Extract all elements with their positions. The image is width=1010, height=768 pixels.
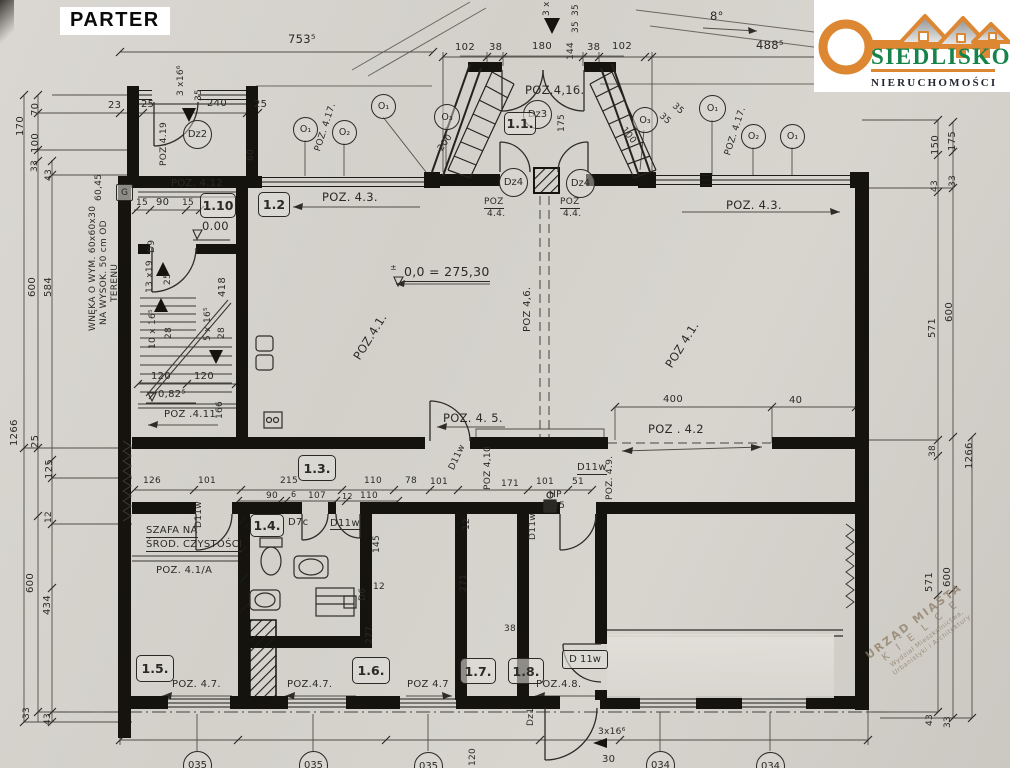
riser-label: ∅25 <box>545 502 565 511</box>
photo-shadow-corner <box>0 0 14 46</box>
dim-label: 60,45 <box>95 174 104 201</box>
dim-label: 12 <box>463 518 472 530</box>
room-1-6: 1.6. <box>352 657 390 684</box>
logo-underline <box>871 69 995 72</box>
door-tag-dz4: Dz4 <box>566 169 595 198</box>
dim-label: 38 <box>504 625 516 634</box>
dim-label: 43 <box>931 180 940 192</box>
dim-label: 120 <box>194 372 214 382</box>
stair-count-label: 3x16⁶ <box>598 728 626 737</box>
dim-label: 100 <box>31 133 41 153</box>
stair-count-label: 10 x 16⁵ <box>149 309 158 349</box>
note-label: TERENU <box>111 264 120 302</box>
dim-label: 35 <box>572 21 581 33</box>
dim-label: 120 <box>151 372 171 382</box>
dim-label: 584 <box>44 277 54 297</box>
poz-label: POZ. 4.7. <box>172 680 221 690</box>
dim-label: 753⁵ <box>288 34 316 46</box>
door-tag: D9 <box>148 240 157 253</box>
stair-count-label: 13 x19 <box>146 260 155 293</box>
dim-label: 102 <box>455 43 475 53</box>
window-axis-o2: O₂ <box>332 120 357 145</box>
logo-brand: SIEDLISKO <box>871 44 1010 69</box>
floorplan-page: PARTER SIEDLISKO NIERUCHOMOŚCI 753⁵ 488⁵… <box>0 0 1010 768</box>
dim-label: 102 <box>612 42 632 52</box>
dim-label: 33 <box>23 707 32 719</box>
dim-label: 12 <box>45 511 54 523</box>
dim-label: 33 <box>31 160 40 172</box>
dim-label: 60 <box>247 149 256 161</box>
dim-label: 101 <box>430 478 448 487</box>
dim-label: 35 <box>195 89 204 101</box>
dim-label: 6 <box>291 491 296 499</box>
gas-box: G <box>116 184 133 201</box>
window-axis-o1: O₁ <box>293 117 318 142</box>
dim-label: 277 <box>366 626 375 644</box>
erased-area <box>607 634 834 698</box>
datum-level: 0,0 = 275,30 <box>404 266 490 282</box>
window-axis-o1: O₁ <box>699 95 726 122</box>
stair-count-label: 3 x16⁶ <box>177 65 186 96</box>
room-1-2: 1.2 <box>258 192 290 217</box>
dim-label: 170 <box>16 116 26 136</box>
houses-icon <box>899 16 1009 46</box>
note-label: ŚROD. CZYSTOŚCI <box>146 540 242 552</box>
dim-label: 101 <box>198 477 216 486</box>
poz-label: POZ.4,16. <box>525 85 584 97</box>
room-1-4: 1.4. <box>250 514 284 537</box>
dim-label: 78 <box>405 477 417 486</box>
door-tag-dz2: Dz2 <box>183 120 212 149</box>
dim-label: 418 <box>218 277 228 297</box>
dim-label: 90 <box>156 198 169 208</box>
dim-label: 1266 <box>10 419 20 446</box>
room-1-1: 1.1. <box>504 112 536 135</box>
dim-label: 110 <box>364 477 382 486</box>
dim-label: 33 <box>949 175 958 187</box>
poz-label: POZ . 4.2 <box>648 424 704 436</box>
dim-label: 38 <box>587 43 600 53</box>
dim-label: 150 <box>931 135 941 155</box>
note-label: SZAFA NA <box>146 526 198 538</box>
note-label: NA WYSOK. 50 cm OD <box>100 220 109 325</box>
dim-label: 90 <box>266 492 278 501</box>
poz-label: POZ. 4.3. <box>322 192 378 204</box>
dim-label: 40 <box>789 396 802 406</box>
poz-upper: POZ <box>560 197 580 209</box>
agency-logo: SIEDLISKO NIERUCHOMOŚCI <box>814 0 1010 92</box>
dim-label: 110 <box>360 492 378 501</box>
dim-label: 600 <box>945 302 955 322</box>
dim-label: 215 <box>280 477 298 486</box>
dim-label: 145 <box>373 535 382 553</box>
door-tag: D11w <box>577 463 607 475</box>
poz-upper: POZ <box>484 197 504 209</box>
dim-label: 43 <box>44 713 53 725</box>
dim-label: 25 <box>141 100 154 110</box>
poz-label: POZ .4.11 <box>164 410 216 420</box>
door-tag: D11w <box>330 519 360 530</box>
dim-label: 240 <box>207 99 227 109</box>
level-plusminus: ± <box>390 264 397 272</box>
room-1-7: 1.7. <box>460 658 496 684</box>
dim-label: 15 <box>136 199 148 208</box>
window-axis-o3: O₃ <box>632 107 658 133</box>
dim-label: 38 <box>929 445 938 457</box>
stair-count-label: 30 <box>602 755 615 765</box>
door-tag: D7c <box>288 518 308 528</box>
dim-label: 12 <box>342 493 353 501</box>
poz-label: 4.4. <box>563 210 581 219</box>
poz-label: POZ <box>484 198 504 207</box>
level-marks <box>146 230 403 403</box>
dim-label: 488⁵ <box>756 40 784 52</box>
dim-label: 175 <box>948 131 958 151</box>
dim-label: 35 <box>572 4 581 16</box>
dim-label: 600 <box>26 573 36 593</box>
door-tag: D11w <box>529 513 538 540</box>
window-axis-o2: O₂ <box>741 124 766 149</box>
dim-label: 271 <box>460 574 469 592</box>
dim-label: 175 <box>558 114 567 132</box>
dim-label: 180 <box>532 42 552 52</box>
door-tag: D11w <box>195 501 204 528</box>
dim-label: 571 <box>928 318 938 338</box>
dim-label: 25 <box>31 435 41 448</box>
dim-label: 12 <box>373 583 385 592</box>
dim-label: 126 <box>143 477 161 486</box>
door-tag: D6 <box>359 588 368 601</box>
dim-label: 107 <box>308 492 326 501</box>
poz-label: POZ. 4.12 <box>171 179 223 189</box>
window-axis-o1: O₁ <box>371 94 396 119</box>
poz-label: POZ 4,6. <box>523 287 533 332</box>
poz-label: POZ.4.19 <box>160 122 169 166</box>
plan-title: PARTER <box>60 7 170 35</box>
logo-subtitle: NIERUCHOMOŚCI <box>871 77 997 89</box>
room-1-10: 1.10 <box>200 193 236 218</box>
poz-label: 4.4. <box>487 210 505 219</box>
window-axis-o3: O₃ <box>434 104 460 130</box>
window-axis-o1: O₁ <box>780 124 805 149</box>
level-label: 0,82⁵ <box>158 390 186 400</box>
dim-label: 28 <box>165 327 174 339</box>
poz-label: POZ.4.7. <box>287 680 332 690</box>
level-label: 0.00 <box>202 221 229 233</box>
note-label: WNĘKA O WYM. 60x60x30 <box>89 206 98 331</box>
dim-label: 171 <box>501 480 519 489</box>
dim-label: 600 <box>28 277 38 297</box>
poz-label: POZ <box>560 198 580 207</box>
dim-label: 70 <box>31 103 41 116</box>
riser-label: HP <box>549 491 562 500</box>
poz-label: POZ 4,10 <box>484 446 493 490</box>
dim-label: 120 <box>469 748 478 766</box>
dim-label: 25 <box>164 273 173 285</box>
dim-label: 15 <box>182 199 194 208</box>
dim-label: 28 <box>218 327 227 339</box>
stair-count-label: 5 x 16⁵ <box>204 307 213 341</box>
agency-logo-graphic: SIEDLISKO NIERUCHOMOŚCI <box>814 0 1010 92</box>
dim-label: 1266 <box>965 442 975 469</box>
dim-label: 144 <box>567 42 576 60</box>
dim-label: 25 <box>254 100 267 110</box>
room-1-5: 1.5. <box>136 655 174 682</box>
dim-label: 51 <box>572 478 584 487</box>
poz-label: POZ. 4.1/A <box>156 566 212 576</box>
dim-label: 434 <box>43 595 53 615</box>
poz-label: POZ. 4.3. <box>726 200 782 212</box>
door-tag: Dz1 <box>527 708 536 726</box>
poz-label: POZ. 4. 5. <box>443 413 503 425</box>
room-1-3: 1.3. <box>298 455 336 481</box>
hatched-masonry <box>239 168 559 698</box>
dim-label: 125 <box>45 459 55 479</box>
dim-label: 400 <box>663 395 683 405</box>
dim-label: 166 <box>216 401 225 419</box>
dim-label: 38 <box>489 43 502 53</box>
roof-slope-label: 8° <box>710 11 724 23</box>
dim-label: 23 <box>108 101 121 111</box>
dim-label: 43 <box>926 714 935 726</box>
dim-label: 43 <box>45 169 54 181</box>
dim-label: 571 <box>925 572 935 592</box>
poz-label: POZ. 4.9. <box>606 456 615 500</box>
door-tag-dz4: Dz4 <box>499 168 528 197</box>
poz-label: POZ.4.8. <box>536 680 581 690</box>
dim-label: 33 <box>944 716 953 728</box>
door-tag-d11w: D 11w <box>562 650 608 669</box>
stair-count-label: 3 x <box>543 1 552 16</box>
dim-label: 101 <box>536 478 554 487</box>
poz-label: POZ 4.7 <box>407 680 449 690</box>
key-icon <box>823 24 869 70</box>
